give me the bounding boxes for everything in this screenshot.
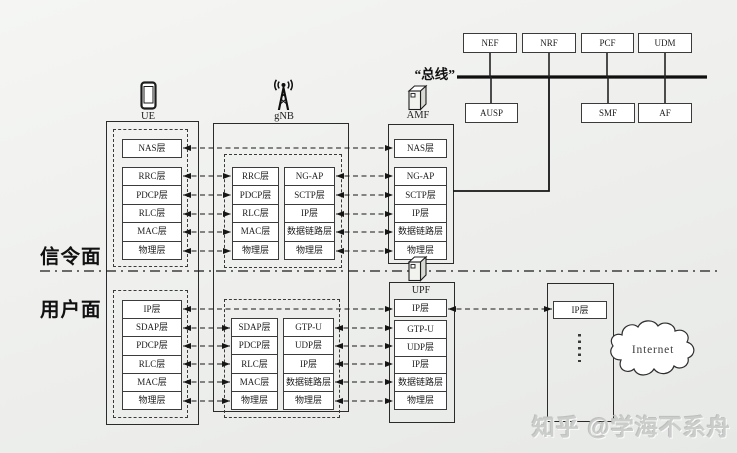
nf-box-ausp: AUSP [465, 103, 518, 123]
ue-nas-cell: NAS层 [122, 139, 182, 158]
layer-cell: IP层 [394, 204, 447, 223]
layer-cell: 数据链路层 [394, 222, 447, 241]
ue-signaling-stack: RRC层 PDCP层 RLC层 MAC层 物理层 [122, 167, 182, 260]
watermark: 知乎 @学海不系舟 [532, 408, 731, 442]
layer-cell: 物理层 [284, 241, 335, 260]
gnb-signaling-right-stack: NG-AP SCTP层 IP层 数据链路层 物理层 [284, 167, 335, 260]
nf-box-smf: SMF [581, 103, 635, 123]
server-icon-upf [406, 255, 429, 282]
nf-box-nef: NEF [463, 33, 517, 53]
layer-cell: RRC层 [232, 167, 279, 186]
gnb-user-right-stack: GTP-U UDP层 IP层 数据链路层 物理层 [283, 318, 334, 410]
layer-cell: NG-AP [394, 167, 447, 186]
layer-cell: MAC层 [122, 222, 182, 241]
antenna-icon [272, 79, 295, 111]
gnb-signaling-left-stack: RRC层 PDCP层 RLC层 MAC层 物理层 [232, 167, 279, 260]
layer-cell: GTP-U [283, 318, 334, 337]
nf-label: AUSP [480, 108, 503, 118]
nf-box-udm: UDM [638, 33, 692, 53]
vertical-ellipsis-icon [578, 334, 581, 362]
layer-cell: RLC层 [122, 355, 182, 374]
nf-label: NEF [481, 38, 498, 48]
layer-cell: IP层 [394, 356, 447, 375]
layer-cell: RLC层 [232, 204, 279, 223]
dn-ip-cell: IP层 [553, 301, 607, 319]
layer-cell: IP层 [122, 300, 182, 319]
gnb-label: gNB [264, 111, 304, 122]
layer-cell: 物理层 [283, 391, 334, 410]
bus-label: “总线” [395, 63, 455, 83]
layer-cell: PDCP层 [231, 336, 278, 355]
layer-cell: UDP层 [283, 336, 334, 355]
layer-cell: MAC层 [231, 373, 278, 392]
layer-cell: 数据链路层 [283, 373, 334, 392]
layer-cell: GTP-U [394, 320, 447, 339]
layer-cell: RLC层 [122, 204, 182, 223]
amf-stack: NG-AP SCTP层 IP层 数据链路层 物理层 [394, 167, 447, 260]
internet-label: Internet [632, 344, 674, 356]
label-signaling-plane: 信令面 [40, 240, 102, 269]
layer-cell: IP层 [284, 204, 335, 223]
layer-cell: RRC层 [122, 167, 182, 186]
nf-label: SMF [599, 108, 617, 118]
ue-label: UE [128, 111, 168, 122]
layer-cell: SCTP层 [284, 185, 335, 204]
upf-stack: GTP-U UDP层 IP层 数据链路层 物理层 [394, 320, 447, 410]
upf-ip-cell: IP层 [394, 299, 447, 317]
layer-cell: 数据链路层 [284, 222, 335, 241]
bus-stubs [490, 53, 665, 103]
nf-label: AF [659, 108, 671, 118]
layer-cell: 物理层 [122, 391, 182, 410]
layer-cell: UDP层 [394, 338, 447, 357]
amf-nas-cell: NAS层 [394, 139, 447, 158]
gnb-user-left-stack: SDAP层 PDCP层 RLC层 MAC层 物理层 [231, 318, 278, 410]
layer-cell: 物理层 [231, 391, 278, 410]
layer-cell: SDAP层 [122, 318, 182, 337]
layer-cell: 物理层 [232, 241, 279, 260]
nf-label: UDM [654, 38, 675, 48]
ue-user-stack: IP层 SDAP层 PDCP层 RLC层 MAC层 物理层 [122, 300, 182, 410]
server-icon-amf [406, 84, 429, 111]
layer-cell: IP层 [283, 354, 334, 373]
layer-cell: MAC层 [232, 222, 279, 241]
nf-box-pcf: PCF [581, 33, 634, 53]
layer-cell: PDCP层 [122, 336, 182, 355]
layer-cell: 物理层 [122, 241, 182, 260]
upf-label: UPF [389, 285, 453, 296]
layer-cell: PDCP层 [122, 185, 182, 204]
layer-cell: SDAP层 [231, 318, 278, 337]
protocol-stack-diagram: NEF NRF PCF UDM AUSP SMF AF “总线” 信令面 用户面… [0, 0, 737, 453]
layer-cell: MAC层 [122, 373, 182, 392]
label-user-plane: 用户面 [40, 293, 102, 322]
layer-cell: PDCP层 [232, 185, 279, 204]
internet-cloud: Internet [606, 318, 700, 384]
nf-box-af: AF [638, 103, 692, 123]
nf-label: NRF [540, 38, 558, 48]
amf-label: AMF [398, 110, 438, 121]
nf-label: PCF [599, 38, 615, 48]
layer-cell: 数据链路层 [394, 373, 447, 392]
amf-bus-connector [453, 78, 549, 191]
smartphone-icon [140, 81, 157, 110]
layer-cell: 物理层 [394, 391, 447, 410]
layer-cell: NG-AP [284, 167, 335, 186]
layer-cell: SCTP层 [394, 185, 447, 204]
nf-box-nrf: NRF [522, 33, 576, 53]
layer-cell: RLC层 [231, 354, 278, 373]
